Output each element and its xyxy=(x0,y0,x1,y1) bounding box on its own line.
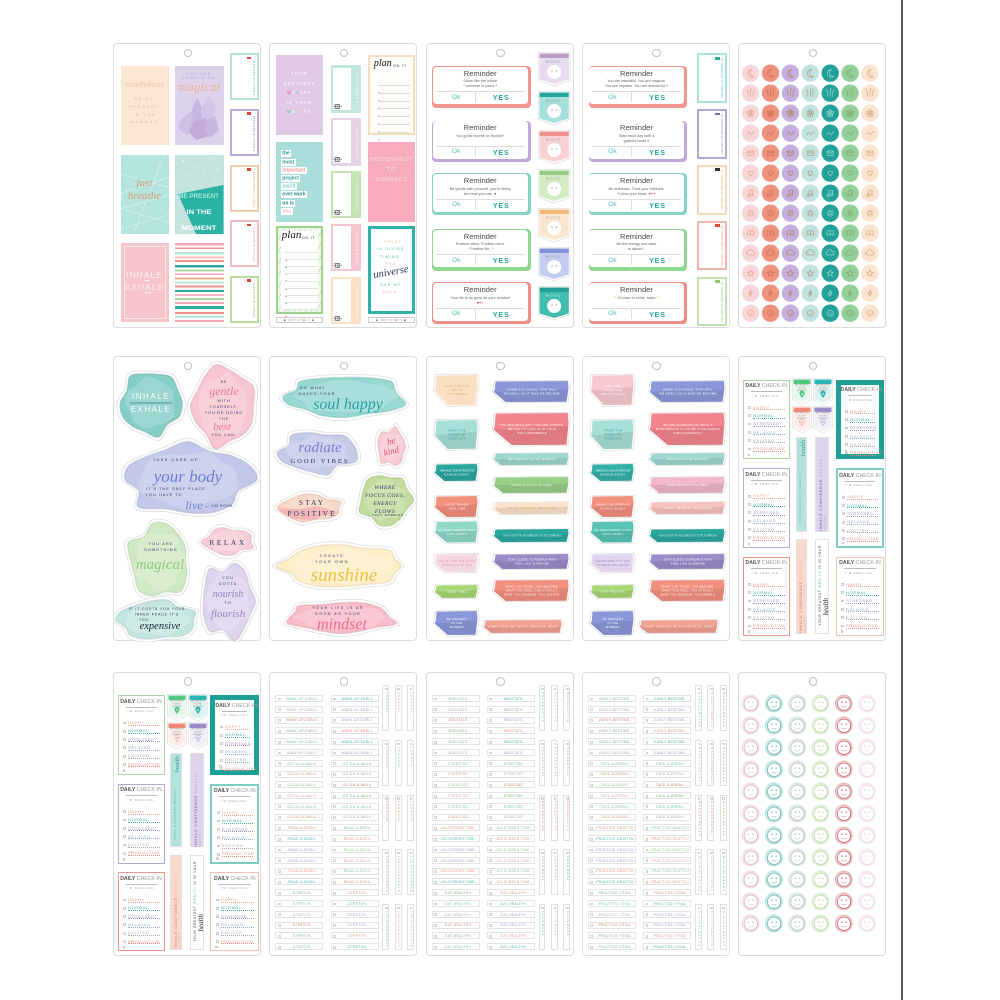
svg-text:MOMENT: MOMENT xyxy=(193,734,203,736)
svg-text:BE PRESENT: BE PRESENT xyxy=(816,413,831,415)
svg-text:FEEL LIKE SUNSHINE: FEEL LIKE SUNSHINE xyxy=(671,562,705,566)
svg-text:BE PRESENT: BE PRESENT xyxy=(795,413,810,415)
svg-text:MOMENT: MOMENT xyxy=(172,734,182,736)
svg-text:INTENTION IN YOU: INTENTION IN YOU xyxy=(441,563,471,567)
svg-text:MOOD: MOOD xyxy=(547,216,563,220)
svg-text:MOOD: MOOD xyxy=(547,59,563,63)
svg-text:STAY POSITIVE: STAY POSITIVE xyxy=(601,590,625,594)
svg-text:YOU GOTTA NOURISH TO FLOURISH: YOU GOTTA NOURISH TO FLOURISH xyxy=(659,534,717,538)
svg-text:WHAT YOU IMAGINE, YOU CREATE.: WHAT YOU IMAGINE, YOU CREATE. xyxy=(660,593,716,597)
svg-text:YOUR LIFE IS AS: YOUR LIFE IS AS xyxy=(312,606,364,610)
svg-text:IF IT COSTS YOU YOUR: IF IT COSTS YOU YOUR xyxy=(129,607,185,611)
svg-text:IN THE: IN THE xyxy=(798,387,806,389)
svg-text:RELAX, REFRESH, RECHARGE: RELAX, REFRESH, RECHARGE xyxy=(507,506,556,510)
svg-text:MOMENT: MOMENT xyxy=(606,625,620,629)
svg-text:IN THE: IN THE xyxy=(819,416,827,418)
svg-text:MOMENT: MOMENT xyxy=(182,226,217,232)
svg-text:OTHERS YOU LEARN: OTHERS YOU LEARN xyxy=(596,563,629,567)
svg-text:BELIEVE IN THE MOMENT: BELIEVE IN THE MOMENT xyxy=(667,457,708,461)
svg-text:OWN CONFIDENCE: OWN CONFIDENCE xyxy=(516,431,546,435)
svg-text:YOUR LIFE: YOUR LIFE xyxy=(448,437,465,441)
svg-text:WHAT YOU IMAGINE, YOU CREATE.: WHAT YOU IMAGINE, YOU CREATE. xyxy=(503,593,559,597)
svg-text:BE PRESENT IN THE MOMENT: BE PRESENT IN THE MOMENT xyxy=(508,457,556,461)
svg-text:SOUL HAPPY: SOUL HAPPY xyxy=(603,532,624,536)
svg-text:BE PRESENT: BE PRESENT xyxy=(179,194,219,200)
svg-text:RELAX, REFRESH, RECHARGE: RELAX, REFRESH, RECHARGE xyxy=(664,506,713,510)
svg-text:FEEL LIKE SUNSHINE: FEEL LIKE SUNSHINE xyxy=(514,562,548,566)
svg-text:BE PRESENT: BE PRESENT xyxy=(191,700,206,702)
svg-text:YOU GOTTA NOURISH TO FLOURISH: YOU GOTTA NOURISH TO FLOURISH xyxy=(503,534,561,538)
svg-text:EXHALE DOUBT: EXHALE DOUBT xyxy=(600,507,625,511)
svg-text:MOMENT: MOMENT xyxy=(797,418,807,420)
svg-text:MOMENT: MOMENT xyxy=(818,418,828,420)
svg-text:BE PRESENT: BE PRESENT xyxy=(795,385,810,387)
svg-text:IS POSSIBLE: IS POSSIBLE xyxy=(446,392,467,396)
svg-text:MOOD: MOOD xyxy=(547,255,563,259)
svg-text:YOUR LIFE: YOUR LIFE xyxy=(604,437,621,441)
svg-text:MOOD: MOOD xyxy=(547,138,563,142)
svg-text:expensive: expensive xyxy=(140,621,181,632)
svg-text:mindset: mindset xyxy=(317,616,367,633)
svg-text:MOOD: MOOD xyxy=(547,98,563,102)
svg-text:BE PRESENT: BE PRESENT xyxy=(170,700,185,702)
svg-text:IN THE: IN THE xyxy=(819,387,827,389)
svg-text:BEST YOU CAN: BEST YOU CAN xyxy=(601,392,625,396)
svg-text:IN THE: IN THE xyxy=(194,703,202,705)
svg-text:BE PRESENT: BE PRESENT xyxy=(816,385,831,387)
svg-text:IN THE: IN THE xyxy=(173,731,181,733)
svg-text:RADIATE POSITIVE VIBES: RADIATE POSITIVE VIBES xyxy=(511,483,552,487)
svg-text:BE PRESENT: BE PRESENT xyxy=(170,728,185,730)
svg-text:SOUL HAPPY: SOUL HAPPY xyxy=(446,532,467,536)
svg-text:IN THE: IN THE xyxy=(798,416,806,418)
svg-text:EXHALE DOUBT: EXHALE DOUBT xyxy=(444,473,469,477)
svg-text:EXHALE DOUBT: EXHALE DOUBT xyxy=(600,473,625,477)
svg-text:MOMENT: MOMENT xyxy=(449,625,463,629)
svg-text:INNER PEACE IT'S: INNER PEACE IT'S xyxy=(135,613,179,617)
svg-text:RADIATE POSITIVE VIBES: RADIATE POSITIVE VIBES xyxy=(667,483,708,487)
svg-text:START YOUR DAY WITH A GRATEFUL: START YOUR DAY WITH A GRATEFUL HEART xyxy=(488,625,559,629)
svg-text:IN THE: IN THE xyxy=(173,703,181,705)
svg-text:START YOUR DAY WITH A GRATEFUL: START YOUR DAY WITH A GRATEFUL HEART xyxy=(644,625,715,629)
svg-text:WE DWELL ON IS WHO WE BECOME: WE DWELL ON IS WHO WE BECOME xyxy=(659,392,716,396)
svg-text:GOOD VIBES: GOOD VIBES xyxy=(446,590,467,594)
svg-text:MOOD: MOOD xyxy=(547,177,563,181)
svg-text:IN THE: IN THE xyxy=(194,731,202,733)
svg-text:TAKE TIME: TAKE TIME xyxy=(448,507,465,511)
svg-text:BE PRESENT: BE PRESENT xyxy=(191,728,206,730)
svg-text:MOOD: MOOD xyxy=(547,294,563,298)
svg-text:IN THE: IN THE xyxy=(187,210,212,216)
svg-text:BE SMALL ON IT WHO WE BECOME: BE SMALL ON IT WHO WE BECOME xyxy=(504,392,560,396)
svg-text:SIMULTANEOUSLY: SIMULTANEOUSLY xyxy=(673,431,702,435)
